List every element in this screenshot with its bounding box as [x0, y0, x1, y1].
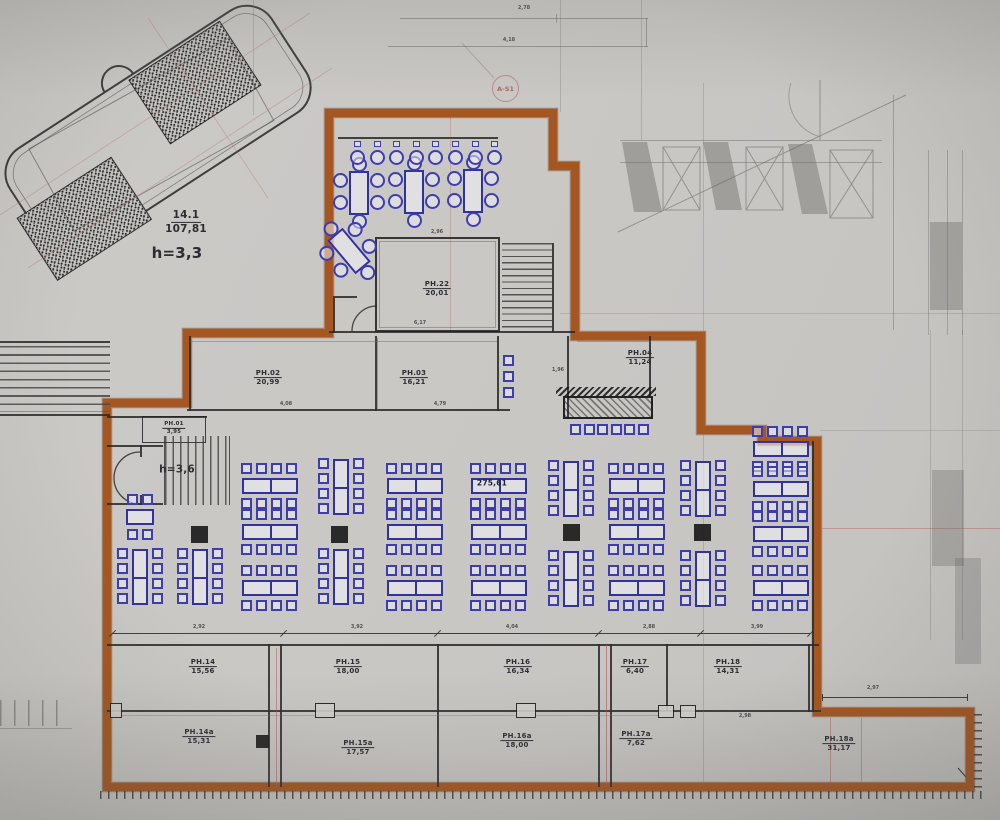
room-code: PH.03: [400, 369, 428, 378]
dimension-text: 2,98: [739, 713, 751, 719]
unit-code: 14.1: [171, 209, 202, 223]
hall-area-label: 275,61: [477, 479, 507, 488]
dimension-text: 6,17: [414, 320, 426, 326]
room-label-ph18a: PH.18a31,17: [822, 735, 855, 753]
room-area: 14,31: [716, 668, 739, 676]
room-area: 11,24: [628, 359, 651, 367]
room-code: PH.14a: [182, 728, 215, 737]
room-code: PH.18a: [822, 735, 855, 744]
room-area: 15,56: [191, 668, 214, 676]
room-code: PH.16a: [500, 732, 533, 741]
dimension-text: 2,78: [518, 5, 530, 11]
dimension-text: 2,88: [643, 624, 655, 630]
room-area: 20,01: [425, 290, 448, 298]
unit-area: 107,81: [165, 223, 207, 235]
room-area: 18,00: [336, 668, 359, 676]
room-label-ph04: PH.0411,24: [626, 349, 654, 367]
room-area: 15,31: [187, 738, 210, 746]
section-marker: A-S1: [492, 75, 519, 102]
room-code: PH.02: [254, 369, 282, 378]
dimension-text: 3,99: [751, 624, 763, 630]
room-label-ph15: PH.1518,00: [334, 658, 362, 676]
room-label-ph14: PH.1415,56: [189, 658, 217, 676]
dimension-text: 2,96: [431, 229, 443, 235]
room-area: 7,62: [627, 740, 645, 748]
dimension-text: 3,92: [351, 624, 363, 630]
dimension-text: 1,96: [552, 367, 564, 373]
room-label-ph16a: PH.16a18,00: [500, 732, 533, 750]
room-area: 3,95: [167, 429, 181, 435]
room-label-ph18: PH.1814,31: [714, 658, 742, 676]
room-code: PH.18: [714, 658, 742, 667]
room-code: PH.16: [504, 658, 532, 667]
room-code: PH.17: [621, 658, 649, 667]
dimension-text: 4,18: [503, 37, 515, 43]
room-area: 17,57: [346, 749, 369, 757]
floor-plan: 14.1 107,81 h=3,3 275,61 h=3,6 A-S1 PH.2…: [0, 0, 1000, 820]
room-area: 31,17: [827, 745, 850, 753]
room-label-ph03: PH.0316,21: [400, 369, 428, 387]
unit-code-area-label: 14.1 107,81: [165, 209, 207, 235]
dimension-text: 4,08: [280, 401, 292, 407]
dimension-text: 4,04: [506, 624, 518, 630]
labels-layer: 14.1 107,81 h=3,3 275,61 h=3,6 A-S1 PH.2…: [0, 0, 1000, 820]
room-label-ph02: PH.0220,99: [254, 369, 282, 387]
room-code: PH.14: [189, 658, 217, 667]
room-code: PH.04: [626, 349, 654, 358]
dimension-text: 2,97: [867, 685, 879, 691]
section-marker-text: A-S1: [497, 85, 514, 93]
room-area: 18,00: [505, 742, 528, 750]
room-label-ph17a: PH.17a7,62: [619, 730, 652, 748]
room-area: 6,40: [626, 668, 644, 676]
unit-height-label: h=3,3: [152, 244, 203, 262]
room-label-ph14a: PH.14a15,31: [182, 728, 215, 746]
room-code: PH.17a: [619, 730, 652, 739]
room-label-ph01: PH.013,95: [162, 421, 185, 435]
dimension-text: 4,79: [434, 401, 446, 407]
hall-height-label: h=3,6: [159, 464, 195, 477]
room-code: PH.15a: [341, 739, 374, 748]
room-code: PH.15: [334, 658, 362, 667]
room-area: 16,34: [506, 668, 529, 676]
dimension-text: 2,92: [193, 624, 205, 630]
room-code: PH.22: [423, 280, 451, 289]
room-label-ph22: PH.2220,01: [423, 280, 451, 298]
room-area: 16,21: [402, 379, 425, 387]
room-label-ph16: PH.1616,34: [504, 658, 532, 676]
room-code: PH.01: [162, 421, 185, 429]
room-area: 20,99: [256, 379, 279, 387]
room-label-ph17: PH.176,40: [621, 658, 649, 676]
room-label-ph15a: PH.15a17,57: [341, 739, 374, 757]
